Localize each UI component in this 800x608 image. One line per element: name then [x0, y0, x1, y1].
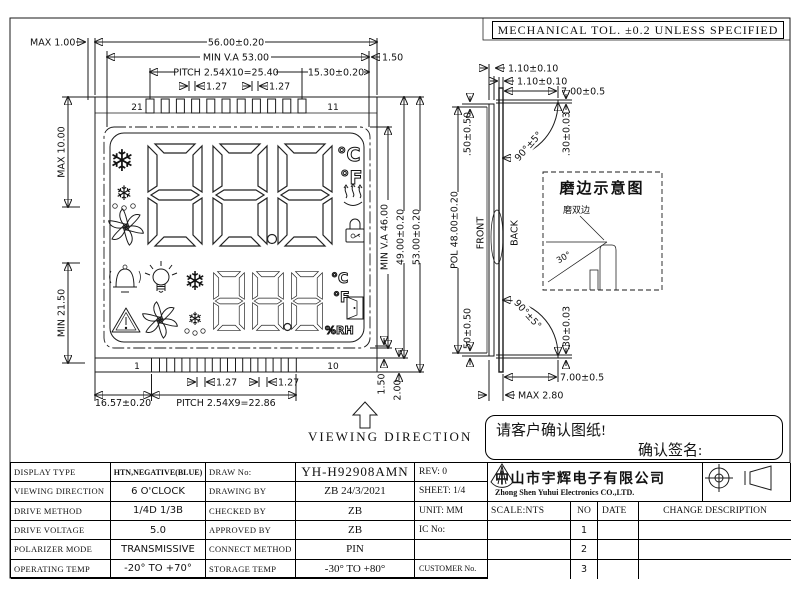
defrost-icon-2: ❄ [185, 309, 205, 335]
warning-icon [112, 308, 140, 332]
seven-segment-digits-large [148, 144, 332, 246]
dim-150-top: 1.50 [382, 53, 403, 64]
confirm-line1: 请客户确认图纸! [496, 419, 606, 440]
dim-height-49: 49.00±0.20 [396, 209, 407, 265]
scale-empty-cell [488, 560, 571, 579]
title-block-left-grid: DISPLAY TYPE HTN,NEGATIVE(BLUE) DRAW No:… [11, 463, 488, 579]
bell-icon [110, 265, 141, 292]
doc-label: APPROVED BY [206, 521, 296, 540]
pin-number-10: 10 [327, 362, 339, 372]
pin-number-21: 21 [131, 103, 142, 113]
top-pin-row [146, 99, 306, 113]
percent-rh: %RH [325, 324, 354, 337]
viewing-direction-arrow-icon [353, 402, 377, 428]
side-dimensions: 1.10±0.10 1.10±0.10 7.00±0.5 .30±0.03 90… [448, 64, 605, 402]
spec-label: DRIVE VOLTAGE [11, 521, 111, 540]
dim-700-bottom: 7.00±0.5 [560, 373, 604, 384]
decimal-point-large [268, 235, 277, 244]
fan-icon [108, 209, 144, 246]
rev-change-cell [639, 540, 791, 559]
title-block: DISPLAY TYPE HTN,NEGATIVE(BLUE) DRAW No:… [10, 462, 790, 578]
rev-no-cell: 1 [571, 521, 598, 540]
edge-detail-angle: 30° [555, 250, 573, 266]
rev-date-cell [598, 540, 639, 559]
dim-030-bottom: .30±0.03 [562, 306, 573, 350]
doc-value: YH-H92908AMN [296, 463, 415, 482]
spec-value: TRANSMISSIVE [111, 540, 206, 559]
viewing-direction-label: VIEWING DIRECTION [308, 429, 472, 444]
dim-030-top: .30±0.03 [562, 112, 573, 156]
doc-label: CONNECT METHOD [206, 540, 296, 559]
dim-127-top-left: 1.27 [206, 82, 227, 93]
edge-detail-title: 磨边示意图 [558, 179, 644, 197]
dim-90-bottom: 90°±5° [511, 298, 543, 332]
doc-label: CHECKED BY [206, 502, 296, 521]
dim-1530: 15.30±0.20 [308, 68, 364, 79]
dim-max-100: MAX 1.00 [30, 38, 75, 49]
meta-cell: IC No: [415, 521, 488, 540]
company-name-cn: 中山市宇辉电子有限公司 [495, 468, 666, 488]
dim-200: 2.00 [393, 379, 404, 400]
bulb-icon [145, 261, 177, 292]
rev-no-cell: 2 [571, 540, 598, 559]
company-cell: 中山市宇辉电子有限公司 Zhong Shen Yuhui Electronics… [488, 463, 703, 502]
change-description-header: CHANGE DESCRIPTION [639, 502, 791, 521]
celsius-top: °C [337, 144, 360, 166]
dim-127-bottom-right: 1.27 [278, 378, 299, 389]
decimal-point-small [284, 324, 291, 331]
doc-value: ZB 24/3/2021 [296, 482, 415, 501]
front-label: FRONT [476, 217, 487, 250]
rev-change-cell [639, 521, 791, 540]
dim-pitch-top: PITCH 2.54X10=25.40 [173, 68, 278, 79]
dim-min-2150: MIN 21.50 [57, 289, 68, 337]
spec-value: 1/4D 1/3B [111, 502, 206, 521]
spec-label: VIEWING DIRECTION [11, 482, 111, 501]
dim-max-280: MAX 2.80 [518, 391, 563, 402]
side-view: FRONT BACK [476, 88, 559, 372]
pin-number-11: 11 [327, 103, 338, 113]
tolerance-note: MECHANICAL TOL. ±0.2 UNLESS SPECIFIED [498, 23, 779, 38]
meta-cell: SHEET: 1/4 [415, 482, 488, 501]
dim-width: 56.00±0.20 [208, 38, 264, 49]
scale-empty-cell [488, 540, 571, 559]
front-view: 21 11 1 10 ❄ [95, 97, 377, 372]
meta-cell [415, 540, 488, 559]
dim-700-top: 7.00±0.5 [561, 87, 605, 98]
dim-pol: POL 48.00±0.20 [450, 191, 461, 269]
pin-number-1: 1 [134, 362, 140, 372]
rev-date-cell [598, 560, 639, 579]
date-header: DATE [598, 502, 639, 521]
rev-date-cell [598, 521, 639, 540]
seven-segment-digits-small [214, 272, 323, 331]
dim-050-top: .50±0.50 [463, 112, 474, 156]
meta-cell: REV: 0 [415, 463, 488, 482]
dim-va-width: MIN V.A 53.00 [203, 53, 269, 64]
snowflake-icon-2: ❄ [184, 266, 206, 296]
dim-va-height: MIN V.A 46.00 [380, 204, 391, 270]
svg-text:❄: ❄ [187, 309, 202, 329]
projection-symbol-cell [703, 463, 791, 502]
company-logo-icon [488, 463, 516, 489]
dim-max-10: MAX 10.00 [57, 126, 68, 177]
spec-label: OPERATING TEMP [11, 560, 111, 579]
dim-150-bottom: 1.50 [377, 373, 388, 394]
front-dimensions: 56.00±0.20 MAX 1.00 MIN V.A 53.00 1.50 P… [30, 36, 424, 409]
dim-110-b: 1.10±0.10 [517, 77, 567, 88]
tolerance-note-box: MECHANICAL TOL. ±0.2 UNLESS SPECIFIED [492, 21, 784, 39]
dim-pitch-bottom: PITCH 2.54X9=22.86 [176, 398, 275, 409]
dim-90-top: 90°±5° [513, 130, 545, 164]
rev-no-cell: 3 [571, 560, 598, 579]
spec-value: HTN,NEGATIVE(BLUE) [111, 463, 206, 482]
doc-value: ZB [296, 502, 415, 521]
doc-label: DRAW No: [206, 463, 296, 482]
spec-label: DRIVE METHOD [11, 502, 111, 521]
scale-cell: SCALE:NTS [488, 502, 571, 521]
lock-icon [346, 219, 364, 242]
company-name-en: Zhong Shen Yuhui Electronics CO.,LTD. [495, 488, 666, 497]
doc-value: ZB [296, 521, 415, 540]
svg-text:❄: ❄ [116, 183, 133, 205]
dim-127-bottom-left: 1.27 [216, 378, 237, 389]
meta-cell: CUSTOMER No. [415, 560, 488, 579]
spec-label: POLARIZER MODE [11, 540, 111, 559]
title-block-right: 中山市宇辉电子有限公司 Zhong Shen Yuhui Electronics… [488, 463, 791, 579]
dim-1657: 16.57±0.20 [95, 398, 151, 409]
third-angle-projection-icon [703, 463, 777, 493]
fan-icon-2 [142, 302, 178, 339]
doc-value: -30° TO +80° [296, 560, 415, 579]
spec-value: -20° TO +70° [111, 560, 206, 579]
drawing-sheet: 21 11 1 10 ❄ [0, 0, 800, 608]
snowflake-icon: ❄ [109, 145, 134, 178]
scale-empty-cell [488, 521, 571, 540]
no-header: NO [571, 502, 598, 521]
celsius-bottom: °C [331, 271, 348, 287]
edge-grinding-detail: 磨边示意图 磨双边 30° [543, 172, 662, 290]
defrost-icon: ❄ [113, 183, 136, 210]
meta-cell: UNIT: MM [415, 502, 488, 521]
spec-value: 6 O'CLOCK [111, 482, 206, 501]
rev-change-cell [639, 560, 791, 579]
dim-127-top-right: 1.27 [269, 82, 290, 93]
doc-value: PIN [296, 540, 415, 559]
doc-label: STORAGE TEMP [206, 560, 296, 579]
dim-height-53: 53.00±0.20 [412, 209, 423, 265]
customer-confirm-box: 请客户确认图纸! 确认签名: [485, 415, 783, 460]
doc-label: DRAWING BY [206, 482, 296, 501]
edge-detail-note: 磨双边 [563, 205, 590, 215]
dim-050-bottom: .50±0.50 [463, 308, 474, 352]
back-label: BACK [510, 219, 521, 245]
confirm-line2: 确认签名: [638, 439, 702, 460]
dim-110-a: 1.10±0.10 [508, 64, 558, 75]
spec-label: DISPLAY TYPE [11, 463, 111, 482]
bottom-pin-row [152, 358, 297, 372]
spec-value: 5.0 [111, 521, 206, 540]
